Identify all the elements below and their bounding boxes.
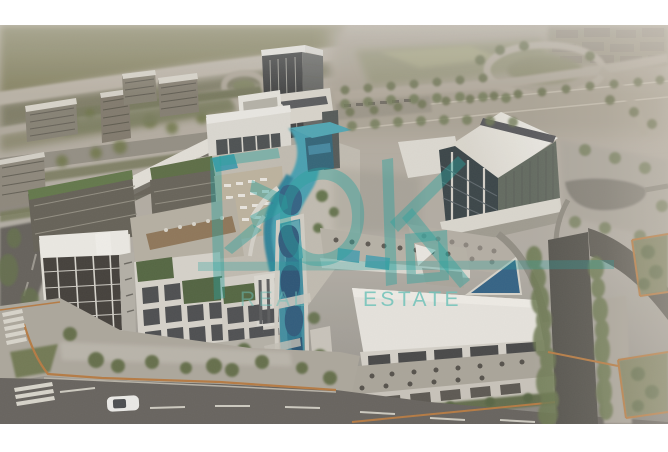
svg-text:ESTATE: ESTATE — [363, 288, 462, 311]
svg-text:REAL: REAL — [240, 288, 308, 311]
